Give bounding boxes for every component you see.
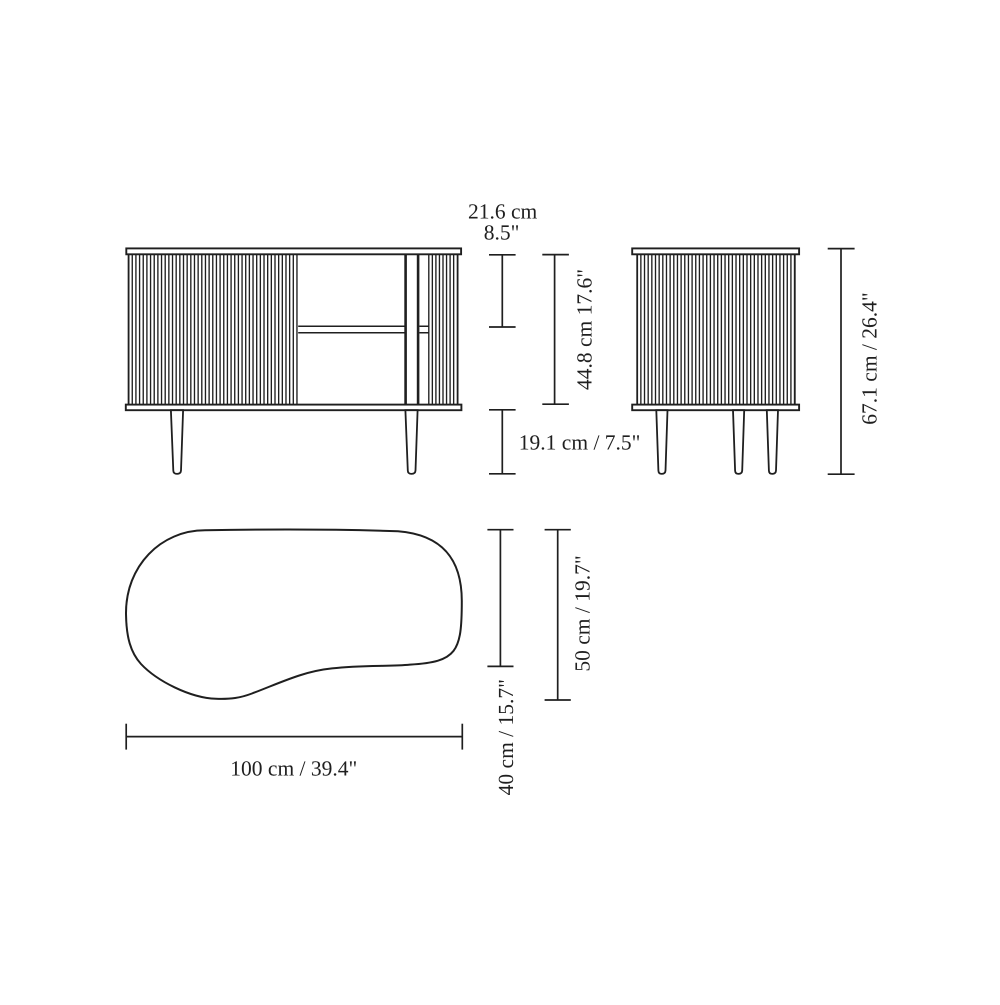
svg-text:100 cm / 39.4": 100 cm / 39.4" [230, 757, 357, 781]
svg-text:8.5": 8.5" [484, 220, 520, 244]
svg-text:50 cm / 19.7": 50 cm / 19.7" [570, 555, 594, 671]
svg-text:67.1 cm / 26.4": 67.1 cm / 26.4" [857, 292, 881, 424]
svg-text:19.1 cm / 7.5": 19.1 cm / 7.5" [519, 431, 641, 455]
svg-text:40 cm / 15.7": 40 cm / 15.7" [494, 679, 518, 795]
svg-text:44.8 cm 17.6": 44.8 cm 17.6" [572, 269, 596, 390]
